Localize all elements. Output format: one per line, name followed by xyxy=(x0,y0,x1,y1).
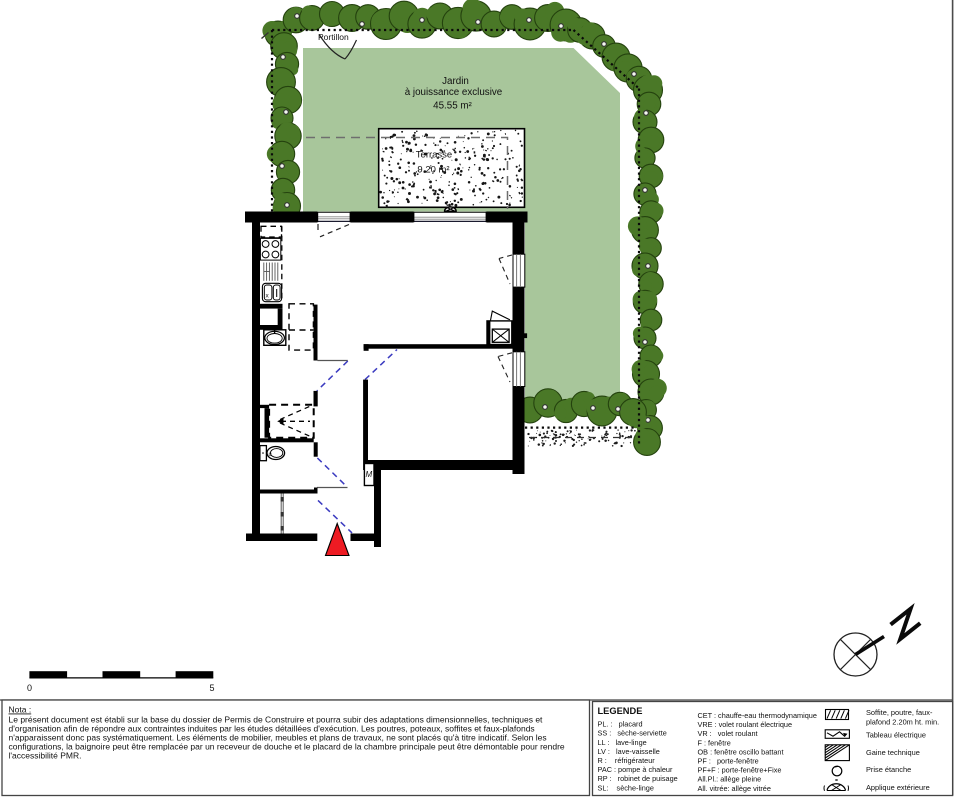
svg-text:PF+F : porte-fenêtre+Fixe: PF+F : porte-fenêtre+Fixe xyxy=(698,766,782,775)
svg-text:PL. : placard: PL. : placard xyxy=(598,720,643,729)
svg-text:All. vitrée: allège vitrée: All. vitrée: allège vitrée xyxy=(698,784,771,793)
svg-text:SS : sèche-serviette: SS : sèche-serviette xyxy=(598,729,667,738)
svg-text:M: M xyxy=(366,470,373,479)
svg-text:OB : fenêtre oscillo battant: OB : fenêtre oscillo battant xyxy=(698,747,784,756)
svg-text:Tableau électrique: Tableau électrique xyxy=(866,731,926,740)
svg-text:VRE : volet roulant électrique: VRE : volet roulant électrique xyxy=(698,720,793,729)
svg-text:RP : robinet de puisage: RP : robinet de puisage xyxy=(598,774,678,783)
svg-text:Portillon: Portillon xyxy=(318,32,349,42)
svg-text:Soffite, poutre, faux-: Soffite, poutre, faux- xyxy=(866,708,933,717)
svg-text:à jouissance exclusive: à jouissance exclusive xyxy=(405,87,503,98)
svg-text:Prise étanche: Prise étanche xyxy=(866,765,911,774)
svg-text:plafond 2.20m ht. min.: plafond 2.20m ht. min. xyxy=(866,718,939,727)
svg-text:SL: sèche-linge: SL: sèche-linge xyxy=(598,783,654,792)
svg-text:configurations, la baignoire p: configurations, la baignoire peut être r… xyxy=(9,741,565,751)
svg-text:PAC : pompe à chaleur: PAC : pompe à chaleur xyxy=(598,765,673,774)
svg-text:All.Pl.: allège pleine: All.Pl.: allège pleine xyxy=(698,775,762,784)
svg-text:Applique extérieure: Applique extérieure xyxy=(866,783,930,792)
svg-text:9.20 m²: 9.20 m² xyxy=(417,165,449,176)
svg-text:0: 0 xyxy=(27,683,32,693)
svg-text:5: 5 xyxy=(209,683,214,693)
svg-text:l'accessibilité PMR.: l'accessibilité PMR. xyxy=(9,751,82,761)
svg-text:VR : volet roulant: VR : volet roulant xyxy=(698,729,758,738)
svg-text:LV : lave-vaisselle: LV : lave-vaisselle xyxy=(598,747,660,756)
svg-text:Jardin: Jardin xyxy=(442,76,469,87)
svg-text:PF : porte-fenêtre: PF : porte-fenêtre xyxy=(698,757,759,766)
svg-text:Gaine technique: Gaine technique xyxy=(866,748,920,757)
svg-text:R : réfrigérateur: R : réfrigérateur xyxy=(598,756,656,765)
svg-text:LEGENDE: LEGENDE xyxy=(598,706,643,716)
svg-text:LL : lave-linge: LL : lave-linge xyxy=(598,738,647,747)
svg-text:Nota :: Nota : xyxy=(9,705,32,715)
svg-text:F : fenêtre: F : fenêtre xyxy=(698,738,731,747)
svg-text:CET : chauffe-eau thermodynami: CET : chauffe-eau thermodynamique xyxy=(698,711,817,720)
svg-text:Terrasse: Terrasse xyxy=(416,150,452,161)
svg-text:45.55 m²: 45.55 m² xyxy=(433,101,472,112)
